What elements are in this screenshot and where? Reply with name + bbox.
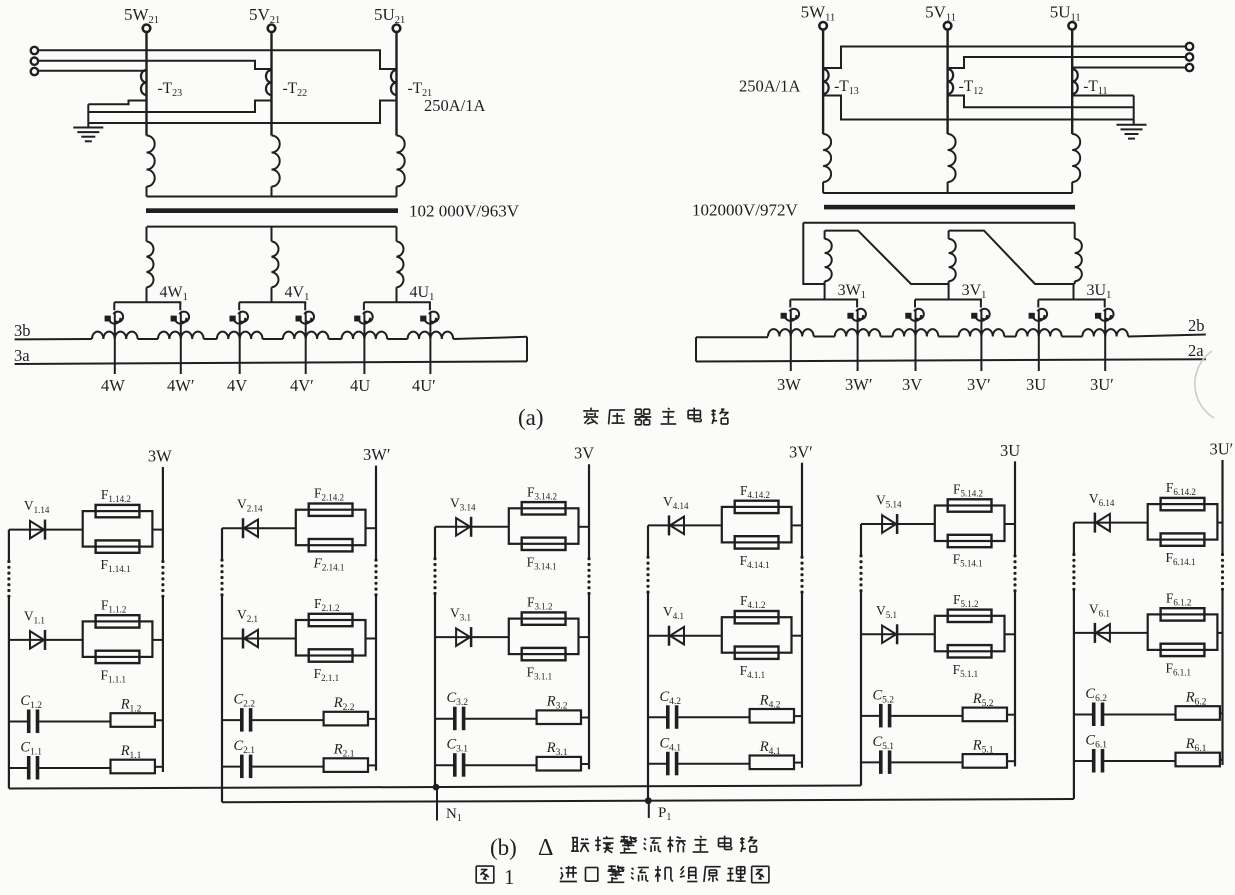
svg-text:F2.1.2: F2.1.2 <box>314 596 340 613</box>
svg-text:3U1: 3U1 <box>1087 282 1112 301</box>
svg-text:3W′: 3W′ <box>845 375 872 394</box>
svg-text:R6.2: R6.2 <box>1185 690 1207 708</box>
svg-text:C3.2: C3.2 <box>447 690 469 708</box>
svg-text:3W1: 3W1 <box>838 282 866 301</box>
svg-text:3V: 3V <box>902 375 922 394</box>
svg-text:F6.14.2: F6.14.2 <box>1166 480 1196 497</box>
svg-text:V2.1: V2.1 <box>237 607 258 624</box>
svg-text:3b: 3b <box>14 321 31 340</box>
svg-text:R4.2: R4.2 <box>759 692 781 710</box>
svg-text:3V′: 3V′ <box>789 442 813 461</box>
svg-text:V3.14: V3.14 <box>450 495 476 512</box>
svg-text:4V: 4V <box>227 376 247 395</box>
svg-text:V3.1: V3.1 <box>450 606 471 623</box>
svg-text:V1.14: V1.14 <box>24 498 50 515</box>
svg-text:R1.1: R1.1 <box>120 743 142 761</box>
svg-text:F4.14.1: F4.14.1 <box>740 553 770 570</box>
svg-text:F1.14.2: F1.14.2 <box>101 487 131 504</box>
svg-text:5U11: 5U11 <box>1050 3 1081 24</box>
svg-text:2b: 2b <box>1188 316 1205 335</box>
svg-text:-T12: -T12 <box>959 78 984 97</box>
svg-text:5V21: 5V21 <box>249 5 280 26</box>
svg-text:-T23: -T23 <box>158 80 183 99</box>
svg-text:C6.1: C6.1 <box>1085 733 1107 751</box>
svg-text:R5.2: R5.2 <box>972 691 994 709</box>
svg-text:2a: 2a <box>1188 341 1204 360</box>
svg-text:F5.14.2: F5.14.2 <box>953 482 983 499</box>
svg-text:4W: 4W <box>101 376 125 395</box>
svg-text:102 000V/963V: 102 000V/963V <box>409 202 520 221</box>
svg-text:4W1: 4W1 <box>160 284 188 303</box>
svg-text:R5.1: R5.1 <box>972 737 994 755</box>
svg-text:3V1: 3V1 <box>962 282 987 301</box>
svg-text:4V′: 4V′ <box>290 376 314 395</box>
svg-text:F5.14.1: F5.14.1 <box>953 552 983 569</box>
svg-text:3W: 3W <box>777 375 801 394</box>
svg-text:V5.14: V5.14 <box>876 493 902 510</box>
svg-text:V4.14: V4.14 <box>663 494 689 511</box>
svg-text:4U1: 4U1 <box>410 284 435 303</box>
svg-text:3W: 3W <box>148 447 172 466</box>
svg-text:R3.1: R3.1 <box>546 740 568 758</box>
svg-text:-T13: -T13 <box>834 78 859 97</box>
svg-text:F1.14.1: F1.14.1 <box>101 557 131 574</box>
svg-text:F3.14.1: F3.14.1 <box>527 554 557 571</box>
svg-text:(b): (b) <box>490 835 517 860</box>
svg-text:P1: P1 <box>658 805 671 823</box>
svg-text:V4.1: V4.1 <box>663 604 684 621</box>
svg-text:C4.2: C4.2 <box>660 689 682 707</box>
svg-text:R1.2: R1.2 <box>120 697 142 715</box>
svg-text:-T22: -T22 <box>283 80 308 99</box>
svg-text:1: 1 <box>504 865 515 889</box>
svg-text:5W21: 5W21 <box>124 5 159 26</box>
svg-text:F5.1.1: F5.1.1 <box>953 662 979 679</box>
svg-text:Δ: Δ <box>538 835 553 861</box>
svg-text:R2.1: R2.1 <box>333 742 355 760</box>
svg-text:250A/1A: 250A/1A <box>424 96 486 115</box>
svg-text:3a: 3a <box>14 346 30 365</box>
svg-text:N1: N1 <box>446 806 462 824</box>
svg-text:3W′: 3W′ <box>363 445 390 464</box>
svg-text:3V: 3V <box>574 444 594 463</box>
svg-text:F3.14.2: F3.14.2 <box>527 484 557 501</box>
svg-text:F5.1.2: F5.1.2 <box>953 592 979 609</box>
svg-text:3V′: 3V′ <box>967 375 991 394</box>
svg-text:4W′: 4W′ <box>167 376 194 395</box>
svg-text:5U21: 5U21 <box>374 5 405 26</box>
svg-text:4U: 4U <box>350 376 370 395</box>
svg-text:F3.1.2: F3.1.2 <box>527 595 553 612</box>
svg-text:F4.14.2: F4.14.2 <box>740 483 770 500</box>
svg-text:5W11: 5W11 <box>801 3 836 24</box>
svg-text:F6.1.2: F6.1.2 <box>1166 590 1192 607</box>
svg-text:F2.14.1: F2.14.1 <box>313 556 345 573</box>
svg-text:C5.2: C5.2 <box>873 687 895 705</box>
svg-text:3U: 3U <box>1026 375 1046 394</box>
svg-text:C1.1: C1.1 <box>20 740 42 758</box>
svg-text:4V1: 4V1 <box>285 284 310 303</box>
svg-text:C4.1: C4.1 <box>660 735 682 753</box>
svg-text:(a): (a) <box>518 405 544 430</box>
svg-text:F2.14.2: F2.14.2 <box>314 486 344 503</box>
svg-text:R6.1: R6.1 <box>1185 736 1207 754</box>
svg-text:F1.1.1: F1.1.1 <box>101 667 127 684</box>
svg-text:5V11: 5V11 <box>925 3 956 24</box>
svg-text:F6.14.1: F6.14.1 <box>1166 550 1196 567</box>
svg-text:3U′: 3U′ <box>1090 375 1114 394</box>
svg-text:V6.1: V6.1 <box>1089 601 1110 618</box>
svg-text:F2.1.1: F2.1.1 <box>314 666 340 683</box>
svg-text:4U′: 4U′ <box>412 376 436 395</box>
svg-text:V2.14: V2.14 <box>237 497 263 514</box>
svg-text:C6.2: C6.2 <box>1085 686 1107 704</box>
svg-text:F1.1.2: F1.1.2 <box>101 597 127 614</box>
svg-text:-T11: -T11 <box>1083 78 1107 97</box>
svg-text:F3.1.1: F3.1.1 <box>527 665 553 682</box>
svg-text:3U′: 3U′ <box>1210 440 1234 459</box>
svg-text:R3.2: R3.2 <box>546 694 568 712</box>
svg-text:250A/1A: 250A/1A <box>739 77 801 96</box>
svg-text:C2.1: C2.1 <box>234 738 256 756</box>
svg-text:V6.14: V6.14 <box>1089 491 1115 508</box>
svg-text:V5.1: V5.1 <box>876 603 897 620</box>
svg-text:3U: 3U <box>1000 441 1020 460</box>
svg-text:F4.1.2: F4.1.2 <box>740 593 766 610</box>
svg-text:C5.1: C5.1 <box>873 734 895 752</box>
svg-text:V1.1: V1.1 <box>24 608 45 625</box>
svg-text:F6.1.1: F6.1.1 <box>1166 660 1192 677</box>
svg-text:F4.1.1: F4.1.1 <box>740 663 766 680</box>
svg-text:102000V/972V: 102000V/972V <box>692 201 799 220</box>
svg-text:R4.1: R4.1 <box>759 739 781 757</box>
svg-text:C1.2: C1.2 <box>20 693 42 711</box>
svg-text:R2.2: R2.2 <box>333 695 355 713</box>
svg-text:C2.2: C2.2 <box>234 692 256 710</box>
svg-text:C3.1: C3.1 <box>447 737 469 755</box>
